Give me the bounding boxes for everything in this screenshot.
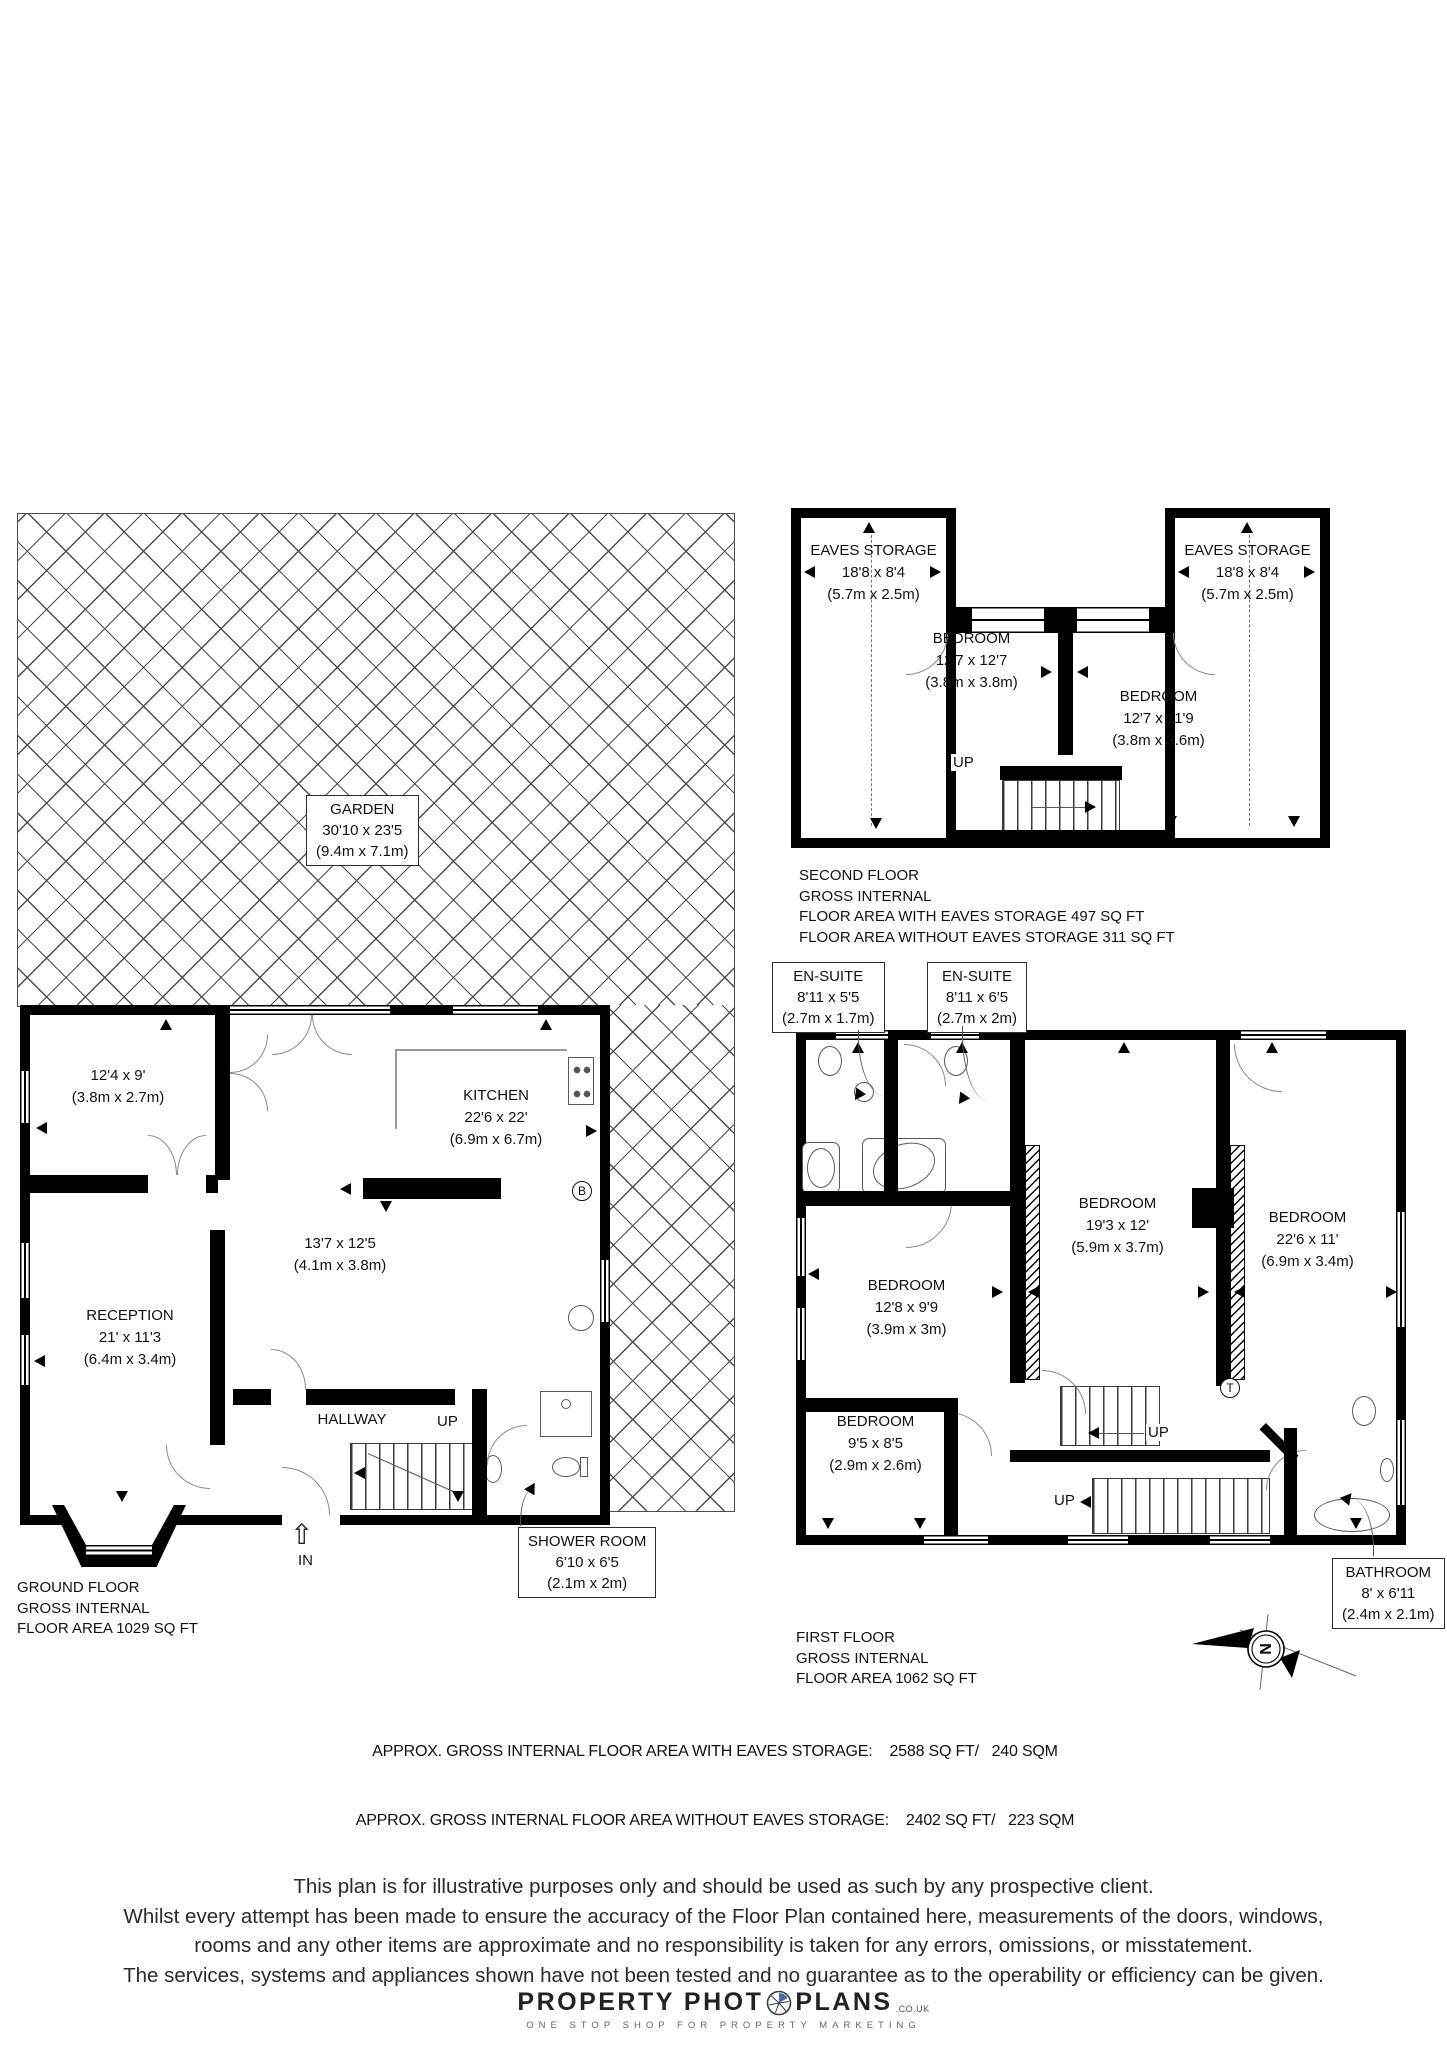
brand-name-left: PROPERTY PHOT <box>517 1988 763 2017</box>
total-area-summary: APPROX. GROSS INTERNAL FLOOR AREA WITH E… <box>20 1694 1410 1855</box>
room-name: RECEPTION <box>50 1305 210 1327</box>
marker-icon <box>452 1491 464 1502</box>
window <box>1396 1420 1406 1505</box>
room-dims-m: (2.9m x 2.6m) <box>798 1455 953 1477</box>
info-line: GROSS INTERNAL <box>796 1649 977 1670</box>
bedroom-19-label: BEDROOM 19'3 x 12' (5.9m x 3.7m) <box>1040 1193 1195 1259</box>
window <box>600 1260 610 1322</box>
room-dims-ft: 22'6 x 11' <box>1230 1229 1385 1251</box>
room-dims-ft: 8' x 6'11 <box>1342 1583 1435 1604</box>
brand-logo: PROPERTY PHOT PLANS .CO.UK ONE STOP SHOP… <box>0 1988 1447 2031</box>
room-dims-ft: 18'8 x 8'4 <box>801 562 946 584</box>
info-line: FLOOR AREA 1062 SQ FT <box>796 1669 977 1690</box>
window <box>1210 1535 1270 1545</box>
ensuite-2-label: EN-SUITE 8'11 x 6'5 (2.7m x 2m) <box>927 962 1027 1033</box>
brand-name-right: PLANS <box>795 1988 892 2017</box>
window <box>20 1071 30 1123</box>
marker-icon <box>340 1183 351 1195</box>
marker-icon <box>808 1268 819 1280</box>
shower-room-label: SHOWER ROOM 6'10 x 6'5 (2.1m x 2m) <box>518 1527 656 1598</box>
room-dims-ft: 13'7 x 12'5 <box>260 1233 420 1255</box>
room-name: EN-SUITE <box>782 966 875 987</box>
window <box>796 1218 806 1276</box>
room-name: BEDROOM <box>1040 1193 1195 1215</box>
stairs-arrow-icon <box>354 1467 365 1479</box>
room-dims-ft: 12'7 x 12'7 <box>894 650 1049 672</box>
marker-icon <box>1266 1042 1278 1053</box>
info-line: FIRST FLOOR <box>796 1628 977 1649</box>
room-dims-m: (2.7m x 1.7m) <box>782 1008 875 1029</box>
info-line: GROUND FLOOR <box>17 1578 198 1599</box>
room-name: BEDROOM <box>1081 686 1236 708</box>
counter-line <box>395 1049 567 1051</box>
marker-icon <box>1165 816 1177 827</box>
wall <box>1000 766 1122 780</box>
window <box>1396 1212 1406 1327</box>
stairs-arrow-icon <box>1088 1427 1099 1439</box>
marker-icon <box>1234 1286 1245 1298</box>
window <box>230 1005 390 1015</box>
room-dims-ft: 22'6 x 22' <box>416 1107 576 1129</box>
room-dims-ft: 12'4 x 9' <box>38 1065 198 1087</box>
up-label: UP <box>435 1413 460 1430</box>
room-name: BEDROOM <box>798 1411 953 1433</box>
stairs-direction-line <box>1096 1433 1144 1434</box>
marker-icon <box>863 522 875 533</box>
wall <box>804 1398 952 1412</box>
wall <box>951 830 1175 848</box>
wall <box>472 1389 487 1517</box>
room-dims-ft: 6'10 x 6'5 <box>528 1552 646 1573</box>
room-name: HALLWAY <box>272 1409 432 1431</box>
sink-icon <box>568 1305 594 1331</box>
toilet-icon <box>1352 1396 1376 1426</box>
marker-icon <box>586 1125 597 1137</box>
wall <box>215 1015 230 1180</box>
room-dims-m: (5.7m x 2.5m) <box>801 584 946 606</box>
room-dims-m: (3.8m x 2.7m) <box>38 1087 198 1109</box>
kitchen-label: KITCHEN 22'6 x 22' (6.9m x 6.7m) <box>416 1085 576 1151</box>
sink-icon <box>1380 1458 1394 1482</box>
bedroom-22-label: BEDROOM 22'6 x 11' (6.9m x 3.4m) <box>1230 1207 1385 1273</box>
brand-logo-line: PROPERTY PHOT PLANS .CO.UK <box>517 1988 929 2017</box>
room-dims-ft: 8'11 x 6'5 <box>937 987 1017 1008</box>
toilet-icon <box>552 1457 580 1477</box>
window <box>453 1005 538 1015</box>
up-label: UP <box>1146 1424 1171 1441</box>
thermostat-symbol: T <box>1220 1378 1240 1398</box>
bathtub-icon <box>807 1148 835 1188</box>
window <box>924 1535 988 1545</box>
marker-icon <box>1304 566 1315 578</box>
room-dims-ft: 21' x 11'3 <box>50 1327 210 1349</box>
room-name: EAVES STORAGE <box>801 540 946 562</box>
second-floor-info: SECOND FLOOR GROSS INTERNAL FLOOR AREA W… <box>799 866 1175 948</box>
window <box>1068 1535 1128 1545</box>
room-dims-m: (3.8m x 3.6m) <box>1081 730 1236 752</box>
up-label: UP <box>1052 1492 1077 1509</box>
room-dims-m: (3.9m x 3m) <box>829 1319 984 1341</box>
marker-icon <box>1198 1286 1209 1298</box>
ground-floor-plan: UP B 12'4 x 9' (3.8m x 2.7m) KITCHEN 22'… <box>20 1005 610 1525</box>
room-dims-ft: 19'3 x 12' <box>1040 1215 1195 1237</box>
wall <box>1010 1450 1270 1462</box>
marker-icon <box>1178 566 1189 578</box>
bedroom-9-label: BEDROOM 9'5 x 8'5 (2.9m x 2.6m) <box>798 1411 953 1477</box>
boiler-symbol: B <box>572 1181 592 1201</box>
second-floor-plan: EAVES STORAGE 18'8 x 8'4 (5.7m x 2.5m) E… <box>791 508 1330 848</box>
marker-icon <box>930 566 941 578</box>
first-floor-plan: UP UP BEDROOM 12'8 x 9'9 (3.9m x 3m) BED… <box>796 1030 1406 1545</box>
info-line: GROSS INTERNAL <box>17 1599 198 1620</box>
room-dims-ft: 18'8 x 8'4 <box>1175 562 1320 584</box>
stairs-arrow-icon <box>1080 1496 1091 1508</box>
room-name: KITCHEN <box>416 1085 576 1107</box>
room-dims-ft: 12'7 x 11'9 <box>1081 708 1236 730</box>
disclaimer-line: rooms and any other items are approximat… <box>0 1931 1447 1961</box>
room-dims-ft: 8'11 x 5'5 <box>782 987 875 1008</box>
wardrobe-strip <box>1025 1145 1040 1380</box>
front-room-label: 12'4 x 9' (3.8m x 2.7m) <box>38 1065 198 1109</box>
stairs-arrow-icon <box>1085 801 1096 813</box>
room-name: EAVES STORAGE <box>1175 540 1320 562</box>
reception-label: RECEPTION 21' x 11'3 (6.4m x 3.4m) <box>50 1305 210 1371</box>
room-dims-m: (2.1m x 2m) <box>528 1573 646 1594</box>
wall <box>363 1178 501 1199</box>
entrance-arrow-icon: ⇧ <box>290 1520 313 1550</box>
room-name: EN-SUITE <box>937 966 1017 987</box>
compass-north-label: N <box>1258 1643 1275 1655</box>
stairs-direction-line <box>1031 807 1085 808</box>
marker-icon <box>34 1355 45 1367</box>
info-line: FLOOR AREA WITHOUT EAVES STORAGE 311 SQ … <box>799 928 1175 949</box>
toilet-cistern-icon <box>580 1457 588 1477</box>
room-dims-m: (4.1m x 3.8m) <box>260 1255 420 1277</box>
wall <box>804 1191 1012 1206</box>
marker-icon <box>36 1122 47 1134</box>
counter-line <box>395 1049 397 1129</box>
middle-room-label: 13'7 x 12'5 (4.1m x 3.8m) <box>260 1233 420 1277</box>
garden-dims-m: (9.4m x 7.1m) <box>316 841 409 862</box>
room-dims-ft: 12'8 x 9'9 <box>829 1297 984 1319</box>
room-name: BATHROOM <box>1342 1562 1435 1583</box>
info-line: SECOND FLOOR <box>799 866 1175 887</box>
room-name: BEDROOM <box>829 1275 984 1297</box>
hallway-label: HALLWAY <box>272 1409 432 1431</box>
door-gap <box>148 1175 206 1193</box>
shower-head-icon <box>561 1399 571 1409</box>
room-dims-m: (3.8m x 3.8m) <box>894 672 1049 694</box>
disclaimer-line: The services, systems and appliances sho… <box>0 1961 1447 1991</box>
stairs <box>1092 1478 1270 1534</box>
camera-aperture-icon <box>766 1990 792 2016</box>
room-name: BEDROOM <box>894 628 1049 650</box>
marker-icon <box>380 1201 392 1212</box>
brand-domain-suffix: .CO.UK <box>896 2004 930 2014</box>
window <box>796 1308 806 1360</box>
marker-icon <box>822 1518 834 1529</box>
room-dims-m: (5.9m x 3.7m) <box>1040 1237 1195 1259</box>
door-gap <box>271 1389 306 1405</box>
chimney-block <box>1192 1188 1234 1228</box>
marker-icon <box>914 1518 926 1529</box>
marker-icon <box>1028 1286 1039 1298</box>
window <box>20 1335 30 1385</box>
disclaimer-line: Whilst every attempt has been made to en… <box>0 1902 1447 1932</box>
marker-icon <box>804 566 815 578</box>
info-line: FLOOR AREA 1029 SQ FT <box>17 1619 198 1640</box>
disclaimer-line: This plan is for illustrative purposes o… <box>0 1872 1447 1902</box>
info-line: FLOOR AREA WITH EAVES STORAGE 497 SQ FT <box>799 907 1175 928</box>
marker-icon <box>1041 666 1052 678</box>
room-dims-m: (5.7m x 2.5m) <box>1175 584 1320 606</box>
bedroom-1-label: BEDROOM 12'7 x 12'7 (3.8m x 3.8m) <box>894 628 1049 694</box>
bathroom-label: BATHROOM 8' x 6'11 (2.4m x 2.1m) <box>1332 1558 1445 1629</box>
first-floor-info: FIRST FLOOR GROSS INTERNAL FLOOR AREA 10… <box>796 1628 977 1690</box>
ensuite-1-label: EN-SUITE 8'11 x 5'5 (2.7m x 1.7m) <box>772 962 885 1033</box>
marker-icon <box>1118 1042 1130 1053</box>
garden-hatch-side-strip <box>608 1005 735 1512</box>
in-label: IN <box>296 1552 315 1569</box>
toilet-icon <box>818 1046 842 1076</box>
room-dims-m: (6.9m x 3.4m) <box>1230 1251 1385 1273</box>
bedroom-2-label: BEDROOM 12'7 x 11'9 (3.8m x 3.6m) <box>1081 686 1236 752</box>
shower-icon <box>540 1391 592 1437</box>
summary-line: APPROX. GROSS INTERNAL FLOOR AREA WITH E… <box>20 1740 1410 1763</box>
garden-name: GARDEN <box>316 799 409 820</box>
ground-floor-info: GROUND FLOOR GROSS INTERNAL FLOOR AREA 1… <box>17 1578 198 1640</box>
summary-line: APPROX. GROSS INTERNAL FLOOR AREA WITHOU… <box>20 1809 1410 1832</box>
wall <box>233 1389 455 1405</box>
room-dims-m: (6.4m x 3.4m) <box>50 1349 210 1371</box>
disclaimer-text: This plan is for illustrative purposes o… <box>0 1872 1447 1990</box>
room-dims-ft: 9'5 x 8'5 <box>798 1433 953 1455</box>
bedroom-12-label: BEDROOM 12'8 x 9'9 (3.9m x 3m) <box>829 1275 984 1341</box>
room-dims-m: (2.4m x 2.1m) <box>1342 1604 1435 1625</box>
floorplan-page: { "colors": {"wall": "#000000", "hatch":… <box>0 0 1447 2048</box>
room-name: SHOWER ROOM <box>528 1531 646 1552</box>
garden-dims-ft: 30'10 x 23'5 <box>316 820 409 841</box>
marker-icon <box>1077 666 1088 678</box>
wall <box>1058 615 1073 755</box>
garden-hatch-area <box>17 513 735 1007</box>
marker-icon <box>1241 522 1253 533</box>
room-name: BEDROOM <box>1230 1207 1385 1229</box>
marker-icon <box>540 1019 552 1030</box>
wall <box>210 1230 225 1470</box>
marker-icon <box>870 818 882 829</box>
room-dims-m: (6.9m x 6.7m) <box>416 1129 576 1151</box>
brand-tagline: ONE STOP SHOP FOR PROPERTY MARKETING <box>0 2020 1447 2031</box>
info-line: GROSS INTERNAL <box>799 887 1175 908</box>
marker-icon <box>1288 816 1300 827</box>
marker-icon <box>116 1491 128 1502</box>
window <box>86 1545 152 1556</box>
marker-icon <box>992 1286 1003 1298</box>
window <box>20 1243 30 1298</box>
window <box>1077 607 1149 633</box>
eaves-storage-right-label: EAVES STORAGE 18'8 x 8'4 (5.7m x 2.5m) <box>1175 540 1320 606</box>
marker-icon <box>160 1019 172 1030</box>
garden-label: GARDEN 30'10 x 23'5 (9.4m x 7.1m) <box>306 795 419 866</box>
up-label: UP <box>951 754 976 771</box>
wall <box>1010 1038 1025 1383</box>
door-gap <box>210 1445 225 1490</box>
eaves-storage-left-label: EAVES STORAGE 18'8 x 8'4 (5.7m x 2.5m) <box>801 540 946 606</box>
marker-icon <box>1386 1286 1397 1298</box>
window <box>1241 1030 1326 1040</box>
